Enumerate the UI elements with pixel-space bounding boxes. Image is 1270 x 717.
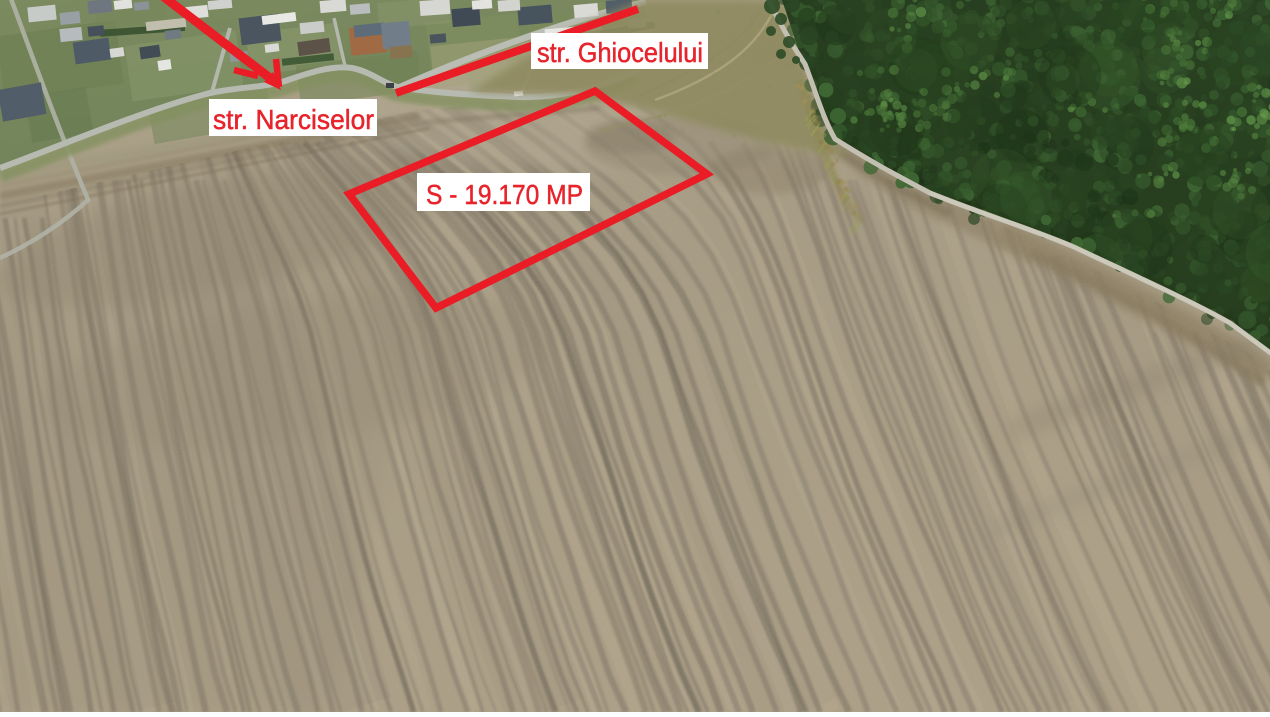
- svg-text:S - 19.170 MP: S - 19.170 MP: [426, 179, 583, 210]
- svg-text:str. Narciselor: str. Narciselor: [213, 104, 374, 135]
- svg-text:str. Ghiocelului: str. Ghiocelului: [537, 37, 703, 68]
